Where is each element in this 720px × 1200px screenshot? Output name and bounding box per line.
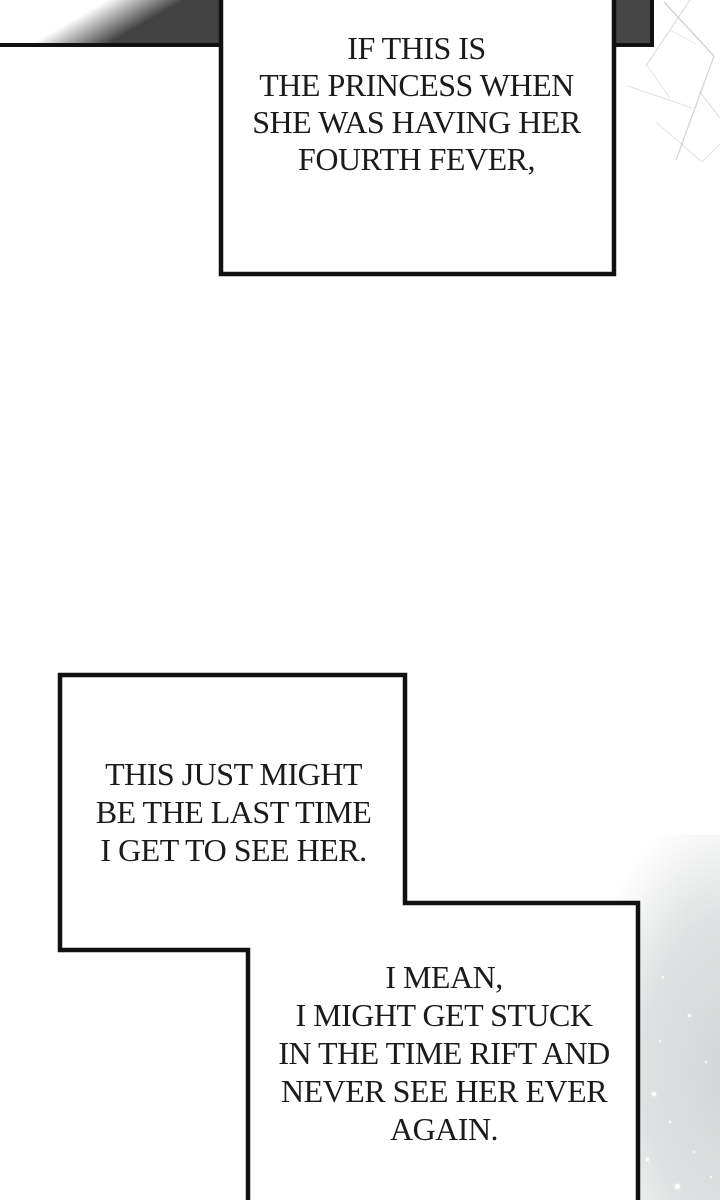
dialogue-line: THE PRINCESS WHEN [219, 67, 614, 104]
dialogue-line: I MIGHT GET STUCK [250, 996, 638, 1034]
dialogue-line: THIS JUST MIGHT [62, 755, 405, 793]
dialogue-line: FOURTH FEVER, [219, 141, 614, 178]
comic-page: IF THIS IS THE PRINCESS WHEN SHE WAS HAV… [0, 0, 720, 1200]
dialogue-line: IF THIS IS [219, 30, 614, 67]
dialogue-line: NEVER SEE HER EVER [250, 1072, 638, 1110]
dialogue-text-top: IF THIS IS THE PRINCESS WHEN SHE WAS HAV… [219, 30, 614, 178]
dialogue-line: I GET TO SEE HER. [62, 831, 405, 869]
dialogue-line: AGAIN. [250, 1110, 638, 1148]
dialogue-line: I MEAN, [250, 958, 638, 996]
dialogue-line: SHE WAS HAVING HER [219, 104, 614, 141]
dialogue-line: BE THE LAST TIME [62, 793, 405, 831]
dialogue-text-bottom: I MEAN, I MIGHT GET STUCK IN THE TIME RI… [250, 958, 638, 1148]
dialogue-text-middle: THIS JUST MIGHT BE THE LAST TIME I GET T… [62, 675, 405, 948]
dialogue-line: IN THE TIME RIFT AND [250, 1034, 638, 1072]
